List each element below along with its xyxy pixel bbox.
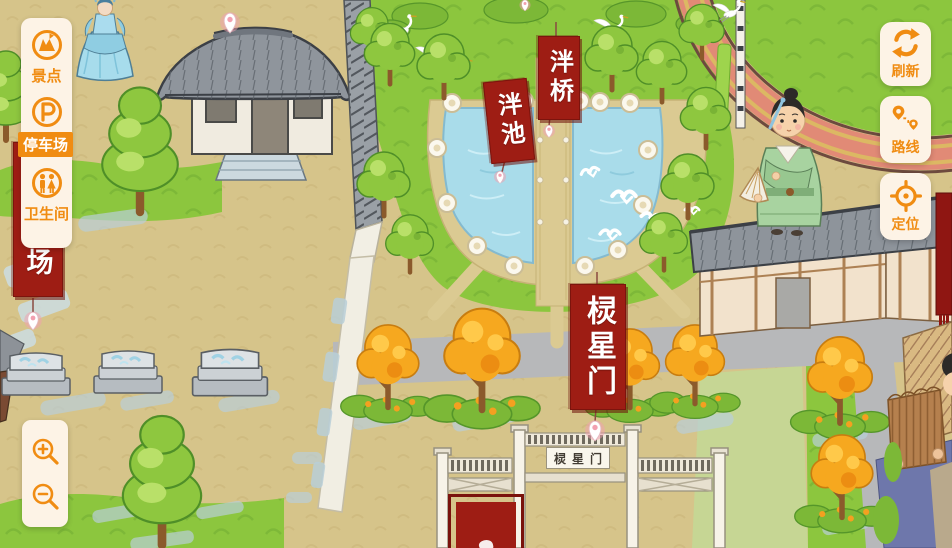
- filter-scenic-spots-label: 景点: [31, 65, 61, 86]
- route-label: 路线: [892, 137, 920, 157]
- filter-restroom[interactable]: 卫生间: [21, 166, 72, 224]
- gate-plaque: 棂星门: [546, 447, 610, 469]
- filter-restroom-label: 卫生间: [24, 203, 69, 224]
- map-illustration: [0, 0, 952, 548]
- scenic-area-map-app: 泮桥 泮池 棂星门 场 棂星门 景点 停车场: [0, 0, 952, 548]
- refresh-label: 刷新: [892, 61, 920, 81]
- map-label-bottom-partial[interactable]: [448, 494, 524, 548]
- zoom-in-button[interactable]: [30, 436, 60, 466]
- filter-scenic-spots[interactable]: 景点: [21, 28, 72, 86]
- map-label-lingxing-gate[interactable]: 棂星门: [570, 284, 626, 410]
- route-button[interactable]: 路线: [880, 96, 931, 163]
- refresh-button[interactable]: 刷新: [880, 22, 931, 86]
- filter-parking-label: 停车场: [18, 132, 73, 157]
- filter-parking[interactable]: 停车场: [21, 95, 72, 157]
- map-label-pan-bridge[interactable]: 泮桥: [538, 36, 580, 120]
- locate-icon: [890, 180, 922, 212]
- zoom-controls: [22, 420, 68, 527]
- poi-filter-panel: 景点 停车场 卫生间: [21, 18, 72, 248]
- refresh-icon: [890, 27, 922, 59]
- zoom-out-button[interactable]: [30, 481, 60, 511]
- boundary-pole: [736, 0, 745, 128]
- parking-icon: [30, 95, 64, 129]
- scenic-spot-icon: [30, 28, 64, 62]
- zoom-in-icon: [31, 437, 59, 465]
- locate-label: 定位: [892, 214, 920, 234]
- map-label-pan-pond[interactable]: 泮池: [483, 78, 535, 164]
- restroom-icon: [30, 166, 64, 200]
- route-icon: [890, 103, 922, 135]
- locate-button[interactable]: 定位: [880, 173, 931, 240]
- zoom-out-icon: [31, 482, 59, 510]
